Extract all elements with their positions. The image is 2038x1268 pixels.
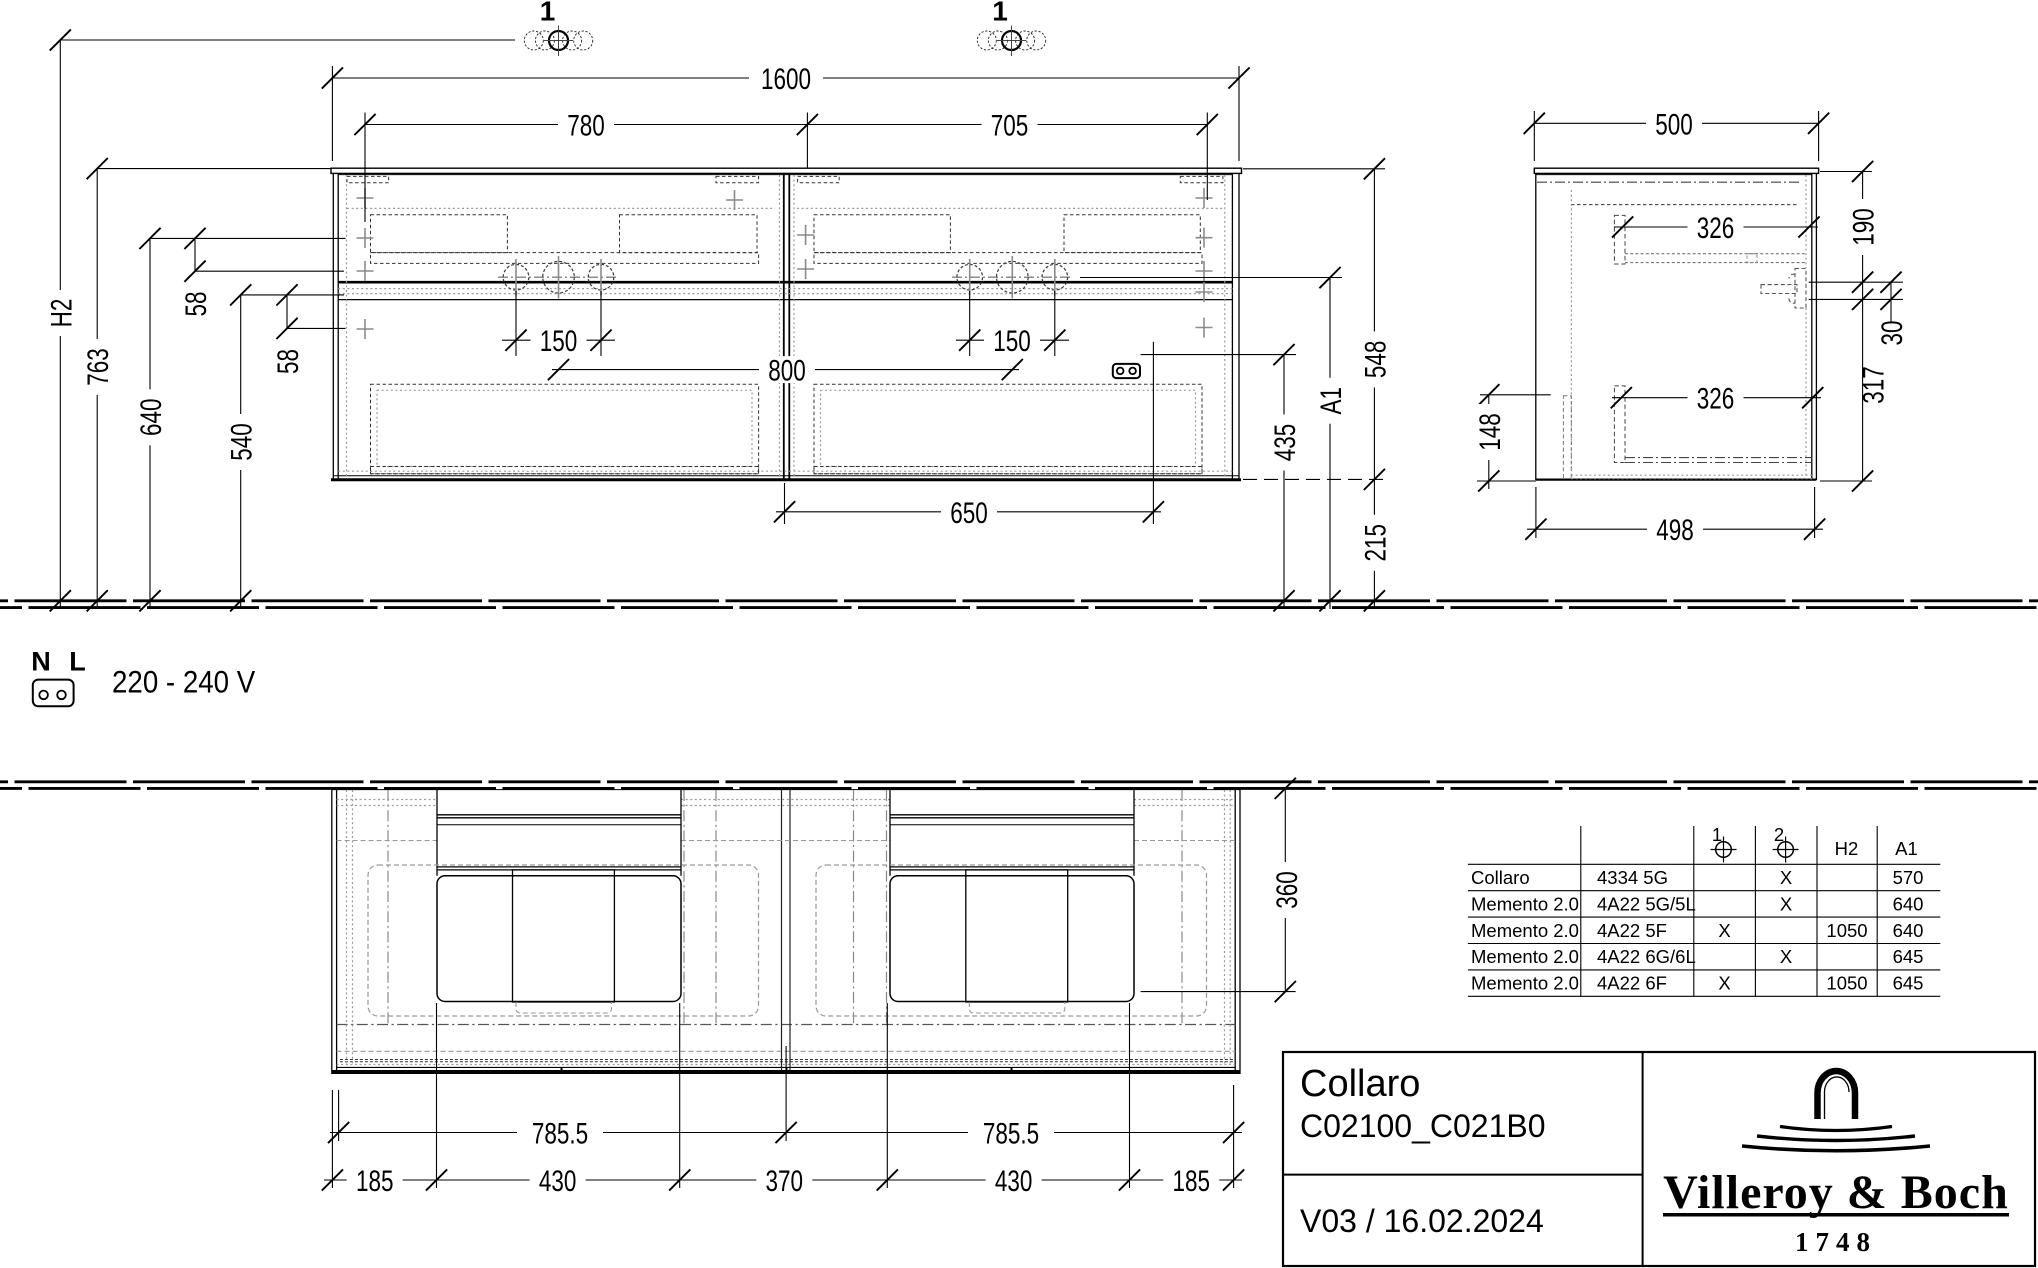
svg-text:A1: A1 — [1895, 838, 1918, 859]
svg-text:800: 800 — [768, 353, 806, 387]
svg-text:185: 185 — [356, 1164, 394, 1198]
svg-text:Memento 2.0: Memento 2.0 — [1471, 893, 1579, 914]
svg-text:220 - 240 V: 220 - 240 V — [112, 665, 255, 700]
svg-text:150: 150 — [540, 324, 578, 358]
svg-text:A1: A1 — [1314, 387, 1348, 415]
svg-text:645: 645 — [1893, 973, 1924, 994]
svg-text:Collaro: Collaro — [1300, 1063, 1420, 1105]
svg-text:785.5: 785.5 — [532, 1116, 588, 1150]
svg-text:58: 58 — [271, 349, 305, 374]
svg-text:640: 640 — [1893, 920, 1924, 941]
svg-text:4334 5G: 4334 5G — [1597, 867, 1668, 888]
svg-text:785.5: 785.5 — [983, 1116, 1039, 1150]
svg-text:780: 780 — [567, 108, 605, 142]
svg-text:X: X — [1718, 973, 1730, 994]
svg-text:430: 430 — [995, 1164, 1033, 1198]
svg-text:317: 317 — [1856, 366, 1890, 404]
svg-text:1748: 1748 — [1795, 1227, 1877, 1257]
svg-text:705: 705 — [991, 108, 1029, 142]
svg-text:640: 640 — [134, 399, 168, 437]
svg-text:Memento 2.0: Memento 2.0 — [1471, 946, 1579, 967]
svg-text:548: 548 — [1358, 341, 1392, 379]
svg-text:150: 150 — [993, 324, 1031, 358]
svg-text:326: 326 — [1697, 211, 1735, 245]
svg-text:190: 190 — [1846, 208, 1880, 246]
svg-text:H2: H2 — [44, 299, 78, 328]
svg-text:370: 370 — [766, 1164, 804, 1198]
svg-text:430: 430 — [539, 1164, 577, 1198]
svg-text:326: 326 — [1697, 382, 1735, 416]
svg-text:H2: H2 — [1835, 838, 1859, 859]
svg-text:C02100_C021B0: C02100_C021B0 — [1300, 1108, 1546, 1144]
svg-text:570: 570 — [1893, 867, 1924, 888]
svg-text:1600: 1600 — [761, 62, 811, 96]
svg-text:58: 58 — [179, 291, 213, 316]
svg-text:4A22 5F: 4A22 5F — [1597, 920, 1667, 941]
svg-text:X: X — [1780, 946, 1792, 967]
svg-text:500: 500 — [1655, 107, 1693, 141]
svg-text:X: X — [1780, 867, 1792, 888]
svg-text:185: 185 — [1173, 1164, 1211, 1198]
svg-text:4A22 5G/5L: 4A22 5G/5L — [1597, 893, 1696, 914]
svg-text:1050: 1050 — [1826, 920, 1867, 941]
svg-text:640: 640 — [1893, 893, 1924, 914]
svg-text:N: N — [31, 647, 51, 677]
svg-text:540: 540 — [225, 423, 259, 461]
svg-text:1: 1 — [540, 0, 556, 27]
svg-text:L: L — [69, 647, 86, 677]
svg-text:Collaro: Collaro — [1471, 867, 1530, 888]
svg-text:X: X — [1780, 893, 1792, 914]
svg-text:Villeroy & Boch: Villeroy & Boch — [1663, 1166, 2009, 1219]
svg-text:215: 215 — [1358, 524, 1392, 562]
svg-text:4A22 6F: 4A22 6F — [1597, 973, 1667, 994]
svg-text:Memento 2.0: Memento 2.0 — [1471, 973, 1579, 994]
svg-text:X: X — [1718, 920, 1730, 941]
svg-text:V03 / 16.02.2024: V03 / 16.02.2024 — [1300, 1203, 1544, 1239]
svg-text:645: 645 — [1893, 946, 1924, 967]
svg-text:1: 1 — [992, 0, 1008, 27]
svg-text:498: 498 — [1656, 513, 1694, 547]
svg-text:360: 360 — [1270, 871, 1304, 909]
svg-text:1050: 1050 — [1826, 973, 1867, 994]
svg-text:763: 763 — [81, 348, 115, 386]
svg-text:148: 148 — [1473, 413, 1507, 451]
svg-text:30: 30 — [1875, 320, 1909, 345]
svg-text:4A22 6G/6L: 4A22 6G/6L — [1597, 946, 1696, 967]
svg-text:Memento 2.0: Memento 2.0 — [1471, 920, 1579, 941]
svg-text:435: 435 — [1268, 424, 1302, 462]
svg-text:650: 650 — [950, 496, 988, 530]
